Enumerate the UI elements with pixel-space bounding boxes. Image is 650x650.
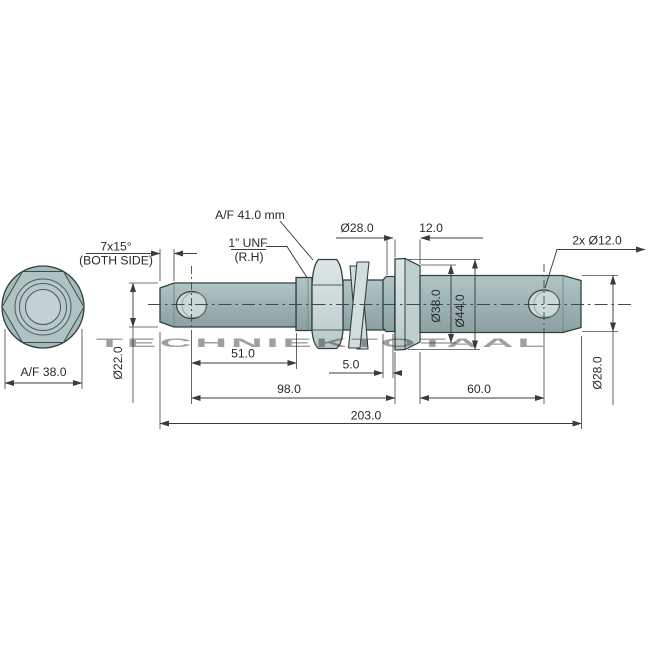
dim-5-label: 5.0 <box>343 358 360 372</box>
dim-98-label: 98.0 <box>277 382 301 396</box>
dim-dia22-label: Ø22.0 <box>111 346 125 379</box>
dim-af41-label: A/F 41.0 mm <box>215 208 285 222</box>
end-view-circle-17 <box>26 290 61 325</box>
dim-dia44-label: Ø44.0 <box>453 294 467 327</box>
dim-dia28-right-label: Ø28.0 <box>591 356 605 389</box>
dim-dia38-label: Ø38.0 <box>429 289 443 322</box>
end-view <box>2 266 84 348</box>
watermark-text: TECHNIEKTOTAAL <box>96 336 548 350</box>
dim-60-label: 60.0 <box>467 382 491 396</box>
pin-technical-drawing: A/F 38.0 7x15° (BOTH SIDE) A/F 41.0 mm 1… <box>0 0 650 650</box>
dim-af38-label: A/F 38.0 <box>20 365 66 379</box>
dim-chamfer-note: (BOTH SIDE) <box>79 254 153 268</box>
dim-203-label: 203.0 <box>351 409 382 423</box>
dim-dia28-top-label: Ø28.0 <box>340 221 373 235</box>
dim-thread-label: 1” UNF <box>228 236 267 250</box>
dim-12-label: 12.0 <box>419 221 443 235</box>
technical-drawing-page: A/F 38.0 7x15° (BOTH SIDE) A/F 41.0 mm 1… <box>0 0 650 650</box>
dim-chamfer-label: 7x15° <box>100 240 131 254</box>
dim-holes-label: 2x Ø12.0 <box>572 234 622 248</box>
dim-thread-note: (R.H) <box>234 250 263 264</box>
